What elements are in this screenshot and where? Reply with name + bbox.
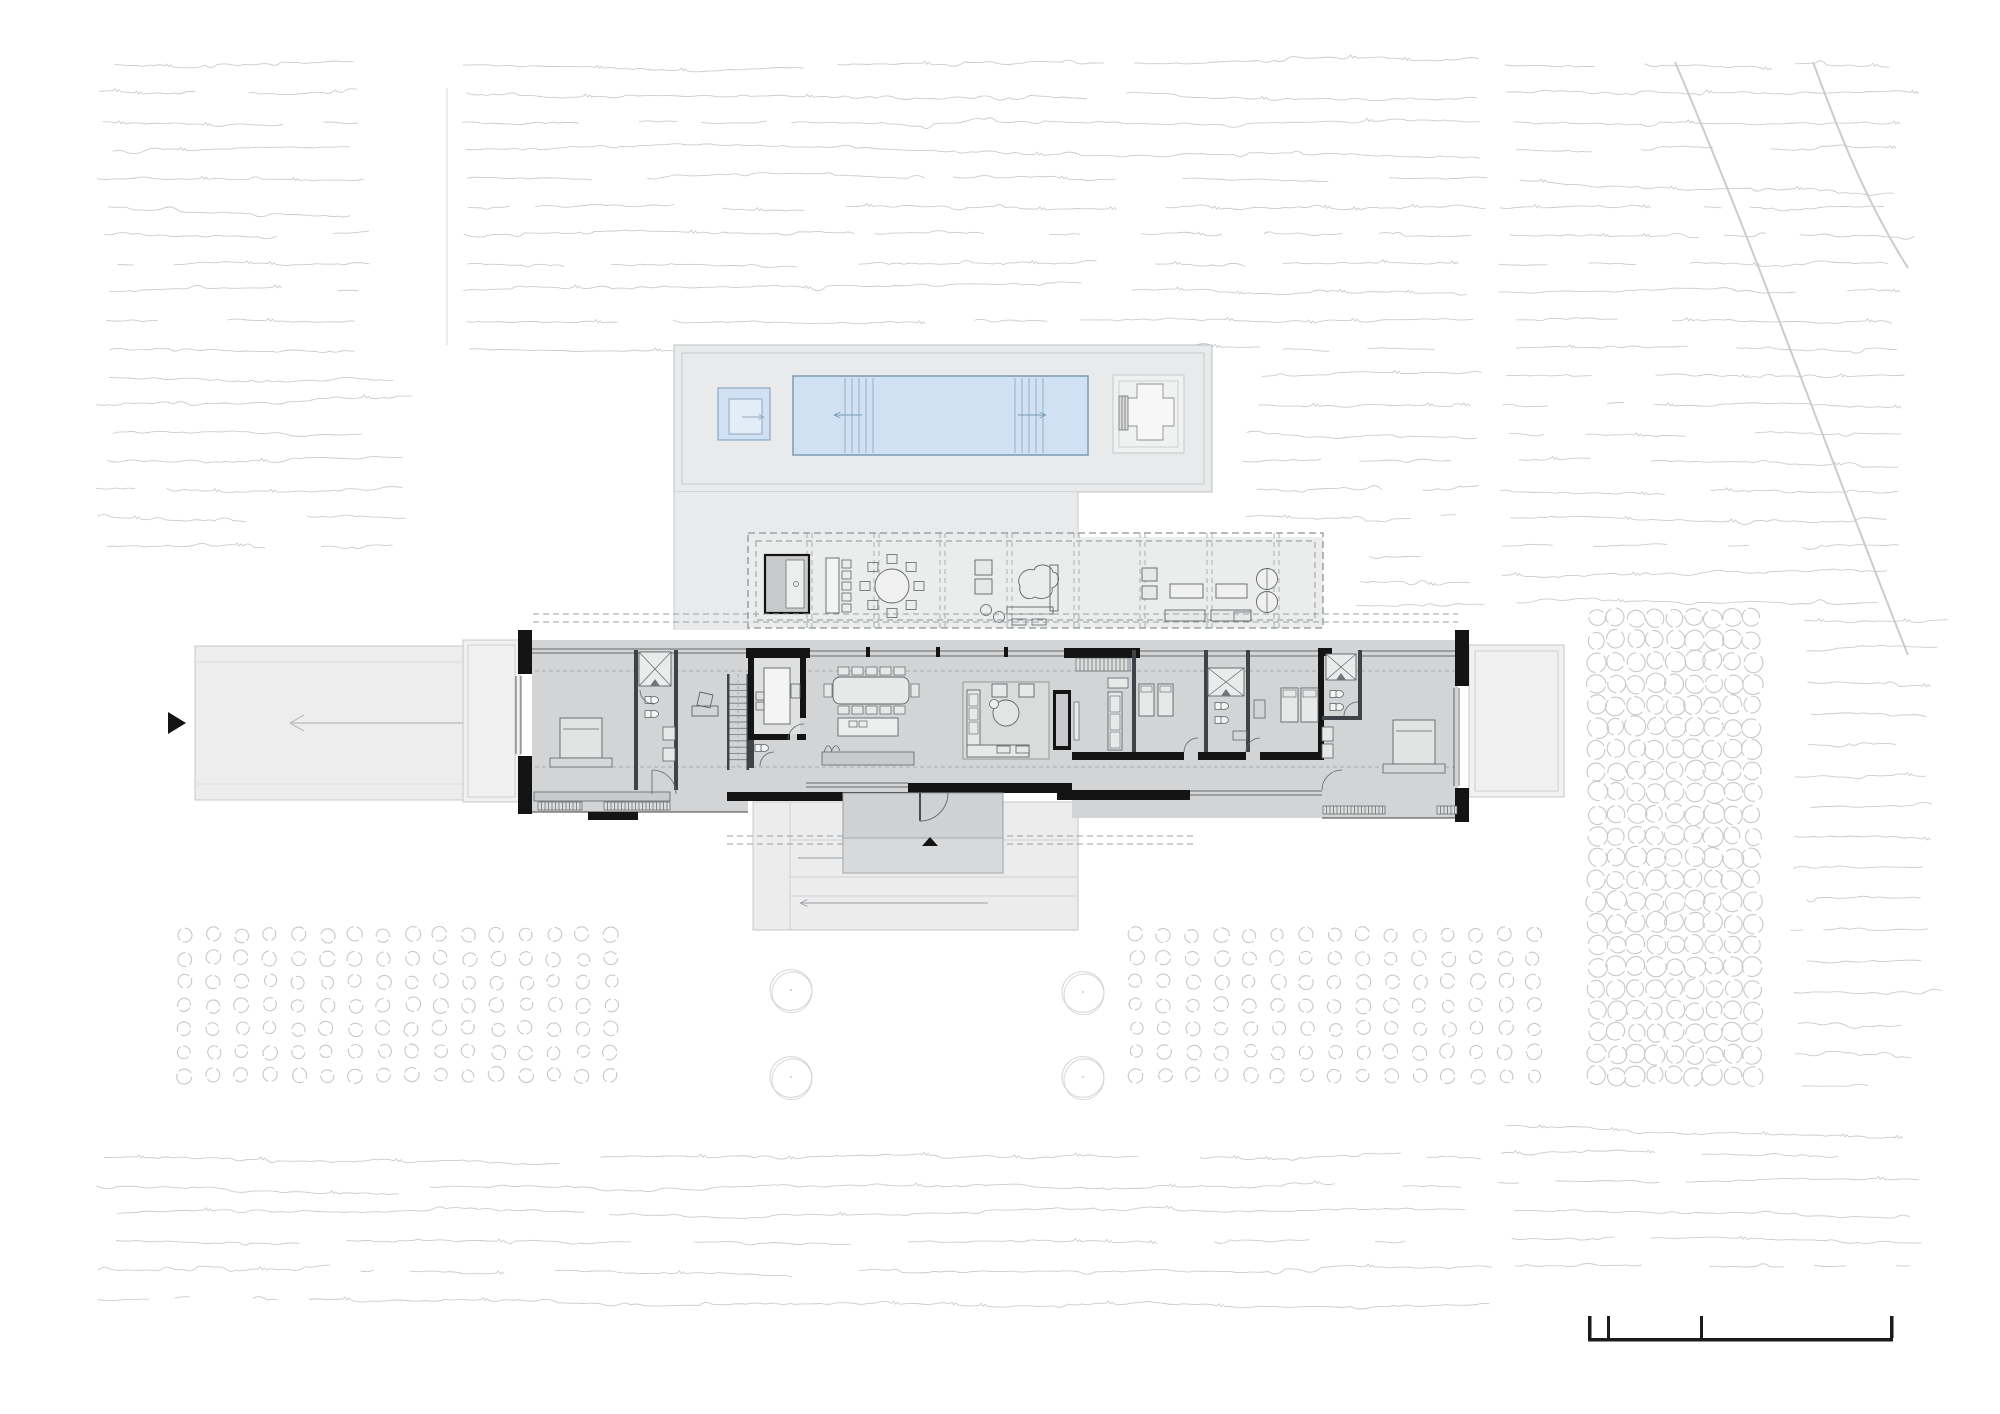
orchard-grid-left-tree [405,995,423,1013]
house-rect [1056,694,1068,746]
orchard-grid-middle-tree [1470,1045,1483,1058]
vineyard-rows-right-upper-row [1519,457,1898,468]
vineyard-rows-top-row [114,55,1479,72]
orchard-grid-middle-tree [1353,996,1374,1017]
orchard-grid-left-tree [432,998,449,1015]
orchard-grid-right-tree [1607,782,1624,799]
orchard-grid-left-tree [232,1042,250,1060]
orchard-grid-right-tree [1739,1042,1764,1067]
orchard-grid-right-tree [1681,908,1709,935]
orchard-grid-middle-tree [1328,951,1342,965]
orchard-grid-right-tree [1721,693,1744,716]
orchard-grid-right-tree [1621,930,1648,957]
dining-chairs [838,667,849,675]
orchard-grid-right-tree [1645,869,1666,891]
house-rect [908,783,1072,793]
vineyard-rows-top-row [97,173,1487,182]
orchard-grid-middle-tree [1382,1066,1402,1086]
orchard-grid-left-tree [263,997,278,1012]
orchard-grid-left-tree [176,951,194,969]
orchard-grid-middle-tree [1353,949,1372,968]
orchard-grid-right-tree [1586,824,1610,848]
orchard-grid-left-tree [489,1021,507,1039]
orchard-grid-right-tree [1684,956,1707,978]
orchard-grid-right-tree [1740,630,1762,651]
orchard-grid-left-tree [317,1043,334,1060]
orchard-grid-right-tree [1643,954,1668,979]
terrace-rect [1216,584,1247,598]
orchard-grid-middle-tree [1437,1041,1457,1061]
orchard-grid-right-tree [1740,759,1765,784]
orchard-grid-middle-tree [1155,1043,1173,1061]
orchard-grid-middle-tree [1381,926,1399,944]
orchard-grid-right-tree [1701,626,1728,653]
orchard-grid-left-tree [603,996,621,1014]
orchard-grid-left-tree [489,1043,508,1062]
orchard-grid-right-tree [1645,650,1666,671]
orchard-grid-left-tree [460,1020,475,1035]
orchard-grid-middle-tree [1440,998,1456,1015]
specimen-tree-2 [765,1052,820,1107]
orchard-grid-right-tree [1703,869,1723,889]
orchard-grid-right-tree [1604,737,1627,760]
dining-chairs [911,684,919,697]
orchard-grid-right-tree [1742,956,1762,976]
orchard-grid-middle-tree [1183,949,1202,968]
orchard-grid-middle-tree [1495,1043,1514,1062]
orchard-grid-left-tree [289,925,308,944]
house-rect [843,838,1003,873]
orchard-grid-middle-tree [1126,1066,1146,1086]
orchard-grid-middle-tree [1241,1019,1260,1038]
orchard-grid-left-tree [545,1044,563,1062]
orchard-grid-right-tree [1587,740,1606,760]
orchard-grid-left-tree [260,925,278,943]
orchard-grid-middle-tree [1496,925,1513,942]
orchard-grid-right-tree [1739,605,1762,629]
orchard-grid-middle-tree [1325,998,1342,1015]
house-rect [1358,650,1362,720]
orchard-grid-middle-tree [1383,1020,1399,1035]
guest-bed-base [550,758,612,767]
orchard-grid-left-tree [431,970,451,990]
orchard-grid-right-tree [1644,740,1665,761]
orchard-grid-middle-tree [1468,997,1484,1013]
vineyard-rows-right-upper-row [1520,179,1894,195]
orchard-grid-left-tree [289,1021,307,1039]
orchard-grid-left-tree [432,1020,447,1035]
mullions [936,647,940,657]
orchard-grid-right-tree [1604,888,1630,913]
orchard-grid-middle-tree [1470,973,1487,990]
vineyard-rows-midright-row [1262,370,1482,376]
orchard-grid-right-tree [1604,869,1626,891]
orchard-grid-left-tree [205,925,222,943]
scale-bar-tick-0 [1588,1316,1592,1338]
east-wall [1455,630,1469,686]
orchard-grid-right-tree [1706,1001,1722,1018]
orchard-grid-left-tree [402,1042,421,1061]
vineyard-rows-right-upper-row [1506,374,1905,378]
vineyard-rows-top-row [118,260,1458,268]
orchard-grid-right-tree [1740,888,1766,914]
orchard-grid-middle-tree [1239,996,1259,1016]
orchard-grid-right-tree [1682,823,1705,846]
orchard-grid-middle-tree [1154,971,1173,990]
vineyard-rows-midleft-row [98,515,406,522]
west-court [463,640,520,802]
orchard-grid-left-tree [546,925,565,944]
orchard-grid-middle-tree [1155,1020,1172,1036]
orchard-grid-middle-tree [1385,974,1400,989]
orchard-grid-middle-tree [1269,927,1284,942]
house-rect [1198,752,1246,760]
orchard-grid-left-tree [405,950,421,966]
orchard-grid-right-tree [1607,1000,1627,1021]
vineyard-rows-top-row [103,118,1480,129]
dining-chairs [852,706,863,714]
pantry-counter [764,668,790,724]
vineyard-rows-right-mid-row [1795,1051,1912,1058]
orchard-grid-middle-tree [1298,926,1315,942]
vineyard-rows-right-mid-row [1806,645,1938,651]
house-rects [1322,727,1333,741]
house-rect [1246,650,1250,752]
vineyard-rows-right-mid-row [1794,836,1931,840]
orchard-grid-right-tree [1699,737,1725,763]
orchard-grid-left-tree [176,972,195,991]
specimen-tree-2-center [790,1076,792,1078]
orchard-grid-right-tree [1722,849,1744,870]
house-rect [1132,650,1136,752]
orchard-grid-right-tree [1739,933,1764,958]
orchard-grid-left-tree [461,951,479,969]
orchard-grid-left-tree [175,996,192,1014]
orchard-grid-left-tree [431,925,448,942]
sun-loungers [975,579,992,594]
orchard-grid-middle-tree [1526,996,1544,1013]
orchard-grid-right-tree [1682,606,1705,628]
vineyard-rows-top-row [108,203,1485,217]
scale-bar-tick-1 [1607,1316,1610,1338]
vineyard-rows-right-upper-row [1502,544,1899,550]
east-patio [1469,645,1564,797]
orchard-grid-right-tree [1720,997,1745,1022]
orchard-grid-right-tree [1700,845,1725,870]
orchard-grid-right-tree [1645,1064,1666,1086]
layer-house [516,614,1469,873]
orchard-grid-middle-tree [1242,952,1256,966]
orchard-grid-left-tree [289,998,305,1014]
orchard-grid-middle-tree [1297,997,1314,1014]
orchard-grid-middle-tree [1185,930,1198,943]
orchard-grid-middle-tree [1411,998,1426,1014]
orchard-grid-right-tree [1663,737,1687,761]
orchard-grid-middle-tree [1356,1069,1370,1083]
orchard-grid-right-tree [1681,802,1707,828]
vineyard-rows-right-mid-row [1807,682,1930,687]
orchard-grid-middle-tree [1468,1019,1484,1035]
sideboard [822,752,914,765]
house-rect [1064,648,1140,658]
terrace-rect [1165,610,1205,621]
orchard-grid-right-tree [1684,1044,1705,1066]
orchard-grid-right-tree [1743,652,1763,673]
orchard-grid-right-tree [1589,806,1607,824]
orchard-grid-left-tree [573,1068,590,1084]
vineyard-rows-bottom-row [117,1206,1466,1219]
orchard-grid-right-tree [1680,866,1705,891]
orchard-grid-middle-tree [1441,928,1454,941]
orchard-grid-right-tree [1681,756,1709,784]
orchard-grid-left-tree [459,925,478,944]
orchard-grid-right-tree [1623,976,1647,1000]
orchard-grid-left-tree [431,948,449,966]
orchard-grid-right-tree [1740,1063,1767,1090]
orchard-grid-right-tree [1661,910,1686,935]
outdoor-dining-table [875,569,909,603]
orchard-grid-right-tree [1625,911,1647,933]
orchard-grid-left-tree [433,1067,449,1083]
orchard-grid-left-tree [491,951,505,965]
wardrobes [663,727,675,740]
wc-fixture [1330,691,1336,698]
house-rects [1322,744,1333,758]
orchard-grid-right-tree [1718,888,1746,916]
orchard-grid-left-tree [260,1043,280,1063]
orchard-grid-left-tree [322,976,334,989]
orchard-grid-right-tree [1741,1022,1762,1042]
orchard-grid-right-tree [1624,1042,1647,1064]
vineyard-rows-right-lower-row [1499,1176,1920,1183]
orchard-grid-middle-tree [1128,1019,1145,1036]
vineyard-rows-top-row [104,230,1471,238]
orchard-grid-right-tree [1662,1020,1686,1044]
orchard-grid-left-tree [459,1042,477,1060]
low-cabinet [534,792,670,801]
orchard-grid-middle-tree [1127,996,1143,1012]
vineyard-rows-midright-row [1243,459,1451,462]
vineyard-rows-bottom-row [116,1239,1405,1245]
layer-site [168,345,1894,1342]
terrace-rect [1170,584,1203,598]
orchard-grid-left-tree [174,1066,195,1087]
orchard-grid-middle-tree [1154,997,1172,1014]
orchard-grid-right-tree [1685,1003,1703,1021]
orchard-grid-left-tree [204,1020,222,1038]
swimming-pool [793,376,1088,455]
orchard-grid-middle-tree [1440,1068,1456,1084]
bar-counter [826,558,839,613]
orchard-grid-right-tree [1719,626,1745,652]
orchard-grid-right-tree [1603,976,1629,1002]
orchard-grid-middle-tree [1126,971,1145,990]
orchard-grid-left-tree [401,1020,420,1039]
orchard-grid-left-tree [261,1019,278,1036]
orchard-grid-right-tree [1702,801,1726,825]
orchard-grid-middle-tree [1212,1044,1230,1062]
orchard-grid-left-tree [205,998,221,1015]
orchard-grid-right-tree [1662,1063,1686,1087]
orchard-grid-left-tree [546,995,564,1014]
armchairs [992,684,1007,697]
orchard-grid-right-tree [1643,891,1666,914]
orchard-grid-middle-tree [1440,1020,1458,1038]
orchard-grid-left-tree [544,1020,563,1039]
vineyard-rows-terrace-right-row [1369,556,1421,558]
orchard-grid-right-tree [1642,824,1667,849]
orchard-grid-left-tree [373,1018,393,1038]
dining-table [833,677,909,704]
orchard-grid-middle-tree [1297,949,1315,967]
specimen-tree-3 [1057,967,1112,1022]
orchard-grid-right-tree [1642,605,1667,631]
orchard-grid-middle-tree [1411,927,1429,945]
vineyard-rows-midleft-row [109,377,394,382]
orchard-grid-left-tree [462,976,476,990]
vineyard-rows-terrace-right-row [1360,581,1470,586]
orchard-grid-middle-tree [1240,973,1258,991]
orchard-grid-middle-tree [1185,998,1201,1013]
orchard-grid-left-tree [289,1043,307,1061]
orchard-grid-right-tree [1606,804,1627,824]
orchard-grid-right-tree [1587,763,1605,781]
orchard-grid-right-tree [1704,1044,1726,1066]
orchard-grid-middle-tree [1413,1068,1427,1082]
vineyard-rows-midright-row [1259,403,1470,407]
orchard-grid-left-tree [434,1044,448,1057]
orchard-grid-right-tree [1625,869,1646,890]
orchard-grid-middle-tree [1382,950,1399,967]
orchard-grid-right-tree [1682,1020,1708,1046]
orchard-grid-right-tree [1626,782,1646,802]
orchard-grid-left-tree [260,1065,280,1085]
orchard-grid-middle-tree [1410,949,1428,967]
orchard-grid-right-tree [1645,1002,1663,1021]
orchard-grid-right-tree [1682,843,1709,869]
orchard-grid-middle-tree [1184,1043,1204,1063]
orchard-grid-right-tree [1720,803,1746,829]
orchard-grid-right-tree [1682,671,1708,697]
orchard-grid-right-tree [1585,674,1607,695]
orchard-grid-right-tree [1723,1066,1744,1086]
orchard-grid-middle-tree [1299,1067,1316,1084]
orchard-grid-left-tree [543,950,563,969]
orchard-grid-middle-tree [1412,973,1430,991]
orchard-grid-right-tree [1741,718,1762,739]
orchard-grid-left-tree [204,1066,221,1084]
orchard-grid-right-tree [1723,1044,1743,1064]
orchard-grid-middle-tree [1410,1043,1430,1063]
vineyard-rows-midright-row [1246,515,1456,522]
orchard-grid-right-tree [1626,1000,1645,1019]
vineyard-rows-right-upper-row [1510,432,1902,437]
orchard-grid-left-tree [489,976,504,991]
orchard-grid-right-tree [1723,935,1742,954]
mullions [1004,647,1008,657]
dining-chairs [866,706,877,714]
orchard-grid-middle-tree [1441,951,1457,968]
orchard-grid-middle-tree [1301,1021,1315,1035]
orchard-grid-left-tree [518,975,535,992]
dining-chairs [894,706,905,714]
orchard-grid-right-tree [1587,870,1605,890]
vineyard-rows-right-mid-row [1794,989,1942,994]
orchard-grid-left-tree [262,972,278,989]
vineyard-rows-top-row [113,144,1480,159]
master-bed [1393,720,1435,764]
orchard-grid-right-tree [1663,997,1688,1022]
orchard-grid-middle-tree [1269,950,1284,966]
orchard-grid-right-tree [1623,672,1647,697]
orchard-grid-right-tree [1719,1019,1745,1045]
house-rect [1455,788,1469,822]
orchard-grid-left-tree [600,924,622,945]
house-rects [1016,746,1029,753]
house-rect [748,656,754,740]
orchard-grid-right-tree [1586,998,1609,1022]
orchard-grid-right-tree [1741,804,1761,824]
orchard-grid-left-tree [403,974,421,992]
orchard-grid-middle-tree [1527,1023,1541,1037]
vineyard-rows-right-lower-row [1512,1236,1922,1243]
orchard-grid-middle-tree [1496,970,1516,990]
orchard-grid-middle-tree [1184,973,1202,991]
orchard-grid-left-tree [520,998,534,1011]
orchard-grid-middle-tree [1412,1021,1428,1037]
orchard-grid-middle-tree [1496,1018,1516,1038]
orchard-grid-right-tree [1700,760,1724,783]
orchard-grid-right-tree [1737,735,1765,764]
orchard-grid-left-tree [376,951,392,968]
orchard-grid-right-tree [1683,780,1708,805]
house-rect [1074,702,1079,740]
orchard-grid-left-tree [374,1066,393,1085]
orchard-grid-left-tree [460,1068,475,1084]
vineyard-rows-right-upper-row [1516,345,1897,353]
orchard-grid-right-tree [1743,675,1763,695]
orchard-grid-right-tree [1583,714,1612,743]
orchard-grid-right-tree [1607,934,1629,955]
orchard-grid-left-tree [346,972,364,990]
orchard-grid-middle-tree [1185,1067,1199,1082]
orchard-grid-right-tree [1643,803,1665,825]
house-rects [997,746,1010,753]
orchard-grid-right-tree [1604,650,1628,674]
orchard-grid-right-tree [1606,914,1626,935]
orchard-grid-right-tree [1680,1064,1706,1090]
orchard-grid-left-tree [345,925,364,943]
orchard-grid-right-tree [1585,845,1610,870]
orchard-grid-left-tree [377,1043,393,1060]
vineyard-rows-right-upper-row [1516,598,1876,605]
orchard-grid-middle-tree [1213,1066,1231,1084]
vineyard-rows-right-upper-row [1499,261,1888,266]
orchard-grid-right-tree [1586,1019,1610,1043]
orchard-grid-right-tree [1721,912,1746,937]
orchard-grid-right-tree [1683,695,1702,715]
dining-chairs [852,667,863,675]
orchard-grid-left-tree [575,951,592,968]
vineyard-rows-right-mid-row [1804,619,1947,623]
orchard-grid-right-tree [1701,695,1723,717]
orchard-grid-right-tree [1646,695,1665,715]
vineyard-rows-right-mid-row [1791,928,1928,930]
wc-fixture [1330,704,1336,711]
vineyard-rows-terrace-right-row [1356,604,1484,607]
vineyard-rows-right-lower-row [1515,1210,1910,1218]
orchard-grid-middle-tree [1328,1022,1344,1038]
